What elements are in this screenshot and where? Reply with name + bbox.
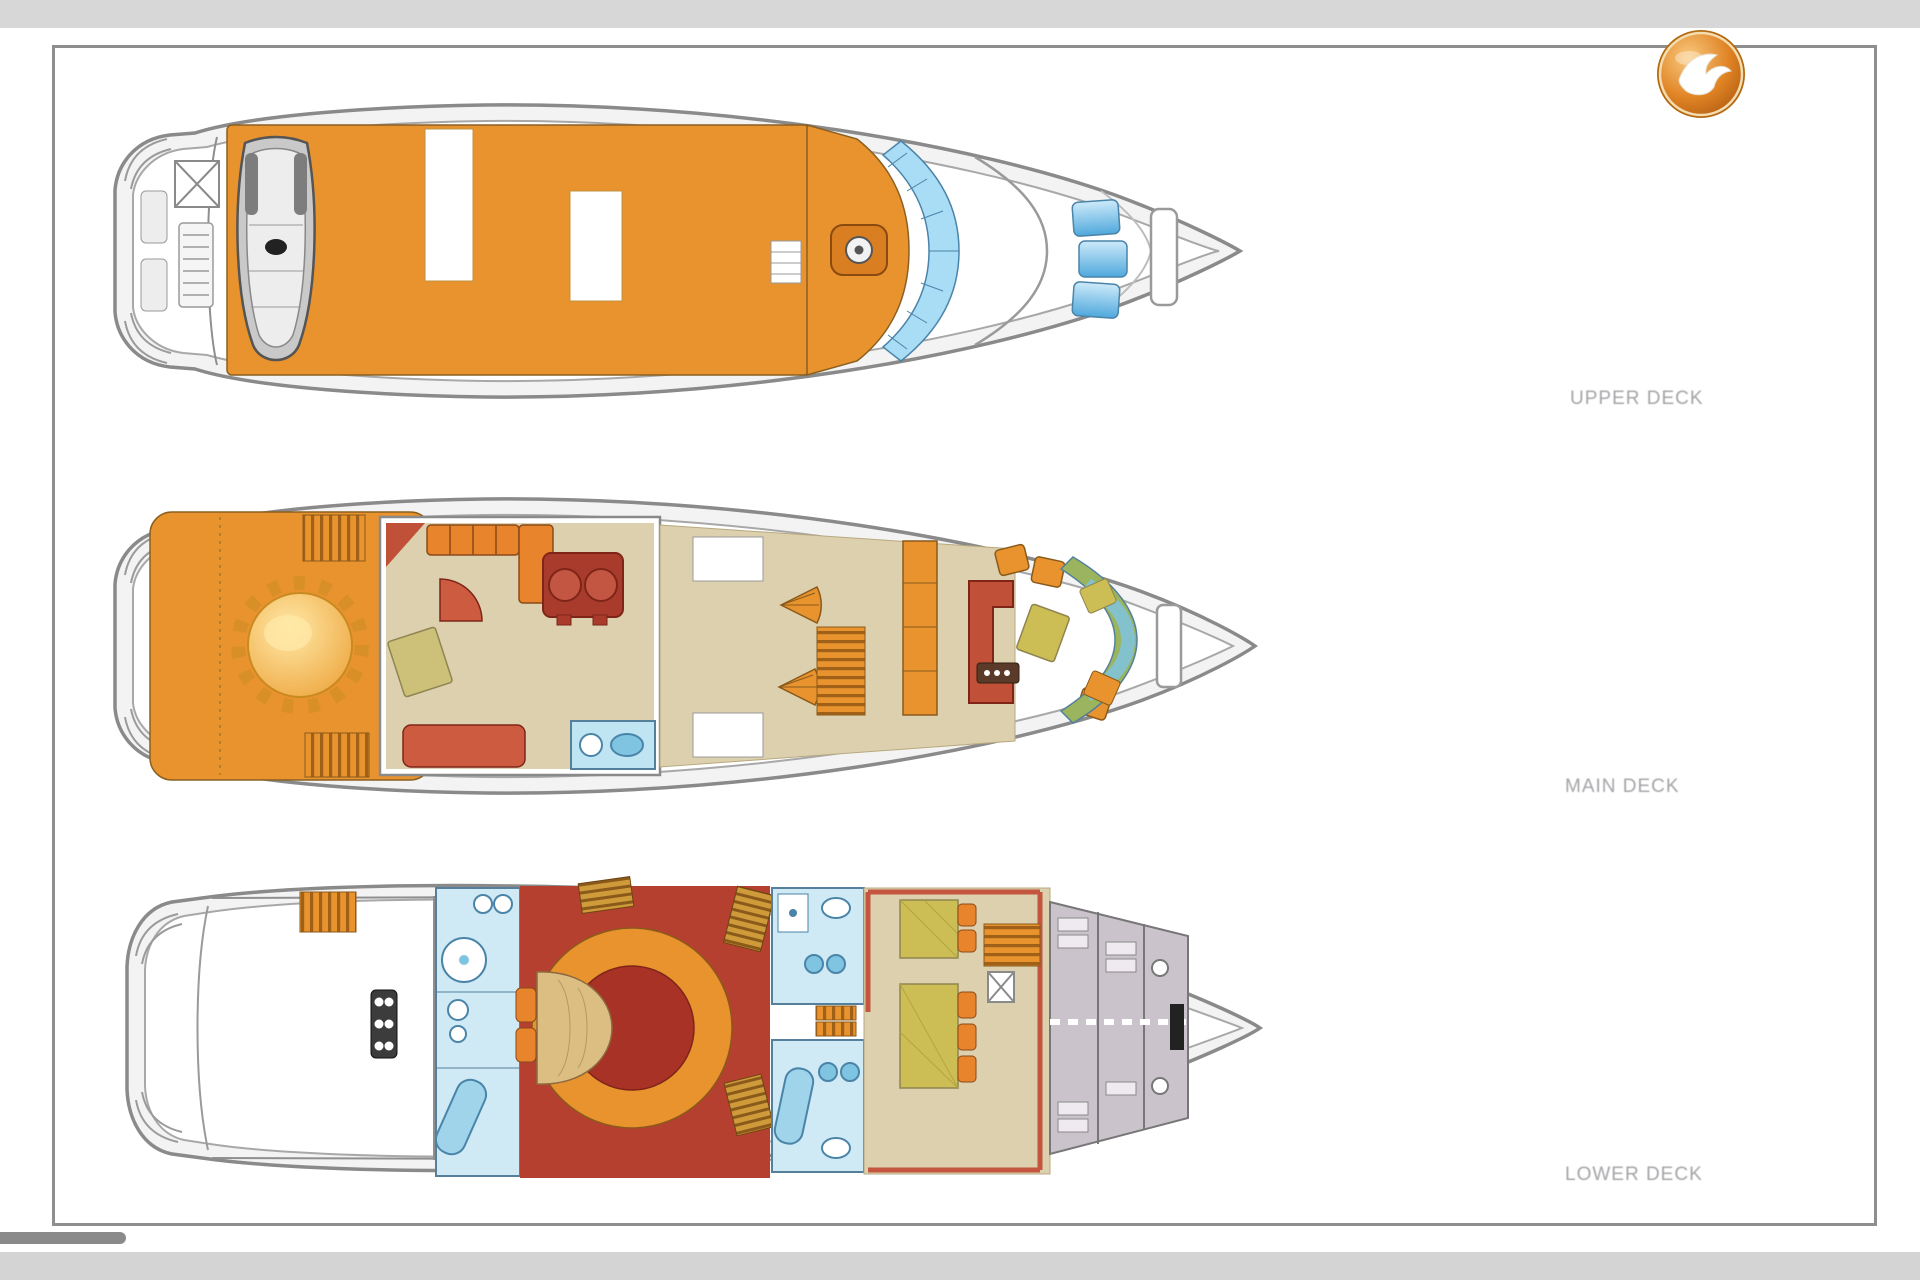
stairs	[305, 733, 369, 777]
logo-gloss	[1675, 51, 1703, 65]
viewer-top-bar	[0, 0, 1920, 28]
guest-bed	[900, 984, 976, 1088]
upper-deck-plan	[95, 95, 1245, 407]
engine-vent-grid	[371, 990, 397, 1058]
day-head	[571, 721, 655, 769]
pillow	[516, 988, 536, 1022]
lower-deck-label: LOWER DECK	[1565, 1164, 1703, 1186]
crew-stair-block	[1170, 1004, 1184, 1050]
stairs	[984, 924, 1040, 966]
stairs-box	[771, 241, 801, 283]
master-cabin	[516, 877, 774, 1178]
stairs	[303, 515, 365, 561]
lower-deck-plan	[112, 872, 1267, 1184]
deck-cutout	[425, 129, 473, 281]
crossed-hatch	[175, 161, 219, 207]
viewer-bottom-bar	[0, 1252, 1920, 1280]
master-bathroom	[431, 888, 520, 1176]
salon-sofa-aft	[403, 725, 525, 767]
bow-skylights	[1072, 199, 1127, 318]
deck-cutout	[570, 191, 622, 301]
pillow	[516, 1028, 536, 1062]
upper-deck-label: UPPER DECK	[1570, 388, 1704, 410]
bow-hatch	[1151, 209, 1177, 305]
bow-hatch	[1157, 605, 1181, 687]
image-viewer-stage: UPPER DECK	[0, 0, 1920, 1280]
stern-locker	[141, 191, 167, 243]
stern-slats	[179, 223, 213, 307]
broker-logo	[1655, 28, 1747, 120]
stern-locker	[141, 259, 167, 311]
tv-console	[543, 553, 623, 625]
guest-cabins	[864, 888, 1050, 1174]
crossed-hatch	[988, 972, 1014, 1002]
helm-console	[831, 225, 887, 275]
main-deck-plan	[95, 487, 1265, 805]
deck-hatch	[300, 892, 356, 932]
stairs	[817, 627, 865, 715]
tender-boat	[237, 137, 314, 360]
main-deck-label: MAIN DECK	[1565, 776, 1680, 798]
horizontal-scrollbar-thumb[interactable]	[0, 1232, 126, 1244]
crew-quarters	[1050, 902, 1188, 1154]
